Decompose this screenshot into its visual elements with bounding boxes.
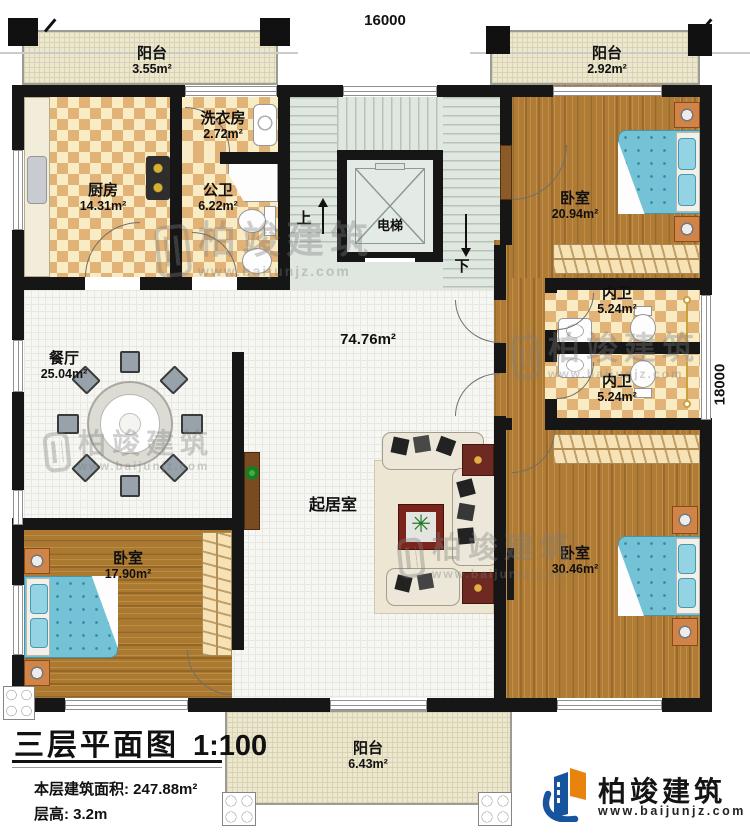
watermark-url: www.baijunjz.com (198, 263, 374, 279)
brand-logo-window (557, 790, 560, 795)
room-area: 3.55m² (112, 62, 192, 76)
column (8, 18, 38, 46)
dining-chair (120, 475, 140, 497)
window (13, 490, 23, 525)
window (13, 150, 23, 230)
bed-sheet (618, 536, 650, 616)
sofa-pillow (413, 435, 431, 453)
room-label-balcony-top-right: 阳台2.92m² (567, 45, 647, 77)
watermark-name: 柏竣建筑 (432, 534, 576, 564)
watermark-logo-icon (510, 333, 542, 380)
wall (12, 518, 244, 530)
watermark-url: www.baijunjz.com (432, 567, 576, 581)
elevator-vent (375, 163, 405, 170)
floor-plan: 电梯 上 下 (0, 0, 750, 836)
wall (437, 85, 553, 97)
wall (494, 343, 506, 373)
wall (427, 698, 557, 712)
wall (12, 525, 24, 585)
window (65, 700, 188, 710)
sofa-pillow (457, 503, 476, 522)
brand-url: www.baijunjz.com (598, 804, 746, 818)
window (343, 86, 437, 96)
wall (12, 277, 85, 290)
room-label-bedroom1: 卧室20.94m² (535, 190, 615, 222)
title-block: 三层平面图1:100 (14, 720, 267, 764)
sliding-door (330, 700, 427, 710)
watermark: 柏竣建筑 www.baijunjz.com (512, 332, 700, 381)
wardrobe (202, 532, 232, 656)
room-area: 17.90m² (88, 567, 168, 581)
room-label-balcony-top-left: 阳台3.55m² (112, 45, 192, 77)
sliding-door (185, 86, 277, 96)
watermark-text-group: 柏竣建筑 www.baijunjz.com (198, 222, 374, 279)
up-arrow-icon (318, 198, 328, 207)
room-area: 25.04m² (24, 367, 104, 381)
floor-area-value: 247.88m² (133, 781, 197, 798)
room-name: 阳台 (567, 45, 647, 62)
pillow (678, 138, 696, 170)
room-label-living: 起居室 (293, 497, 373, 515)
room-label-public-bath: 公卫6.22m² (180, 182, 256, 214)
watermark-text-group: 柏竣建筑 www.baijunjz.com (432, 534, 576, 581)
down-arrow-icon (461, 248, 471, 257)
watermark-text-group: 柏竣建筑 www.baijunjz.com (78, 430, 214, 473)
pillow (30, 618, 48, 648)
cabinet (244, 452, 260, 530)
pillow (30, 584, 48, 614)
wall (277, 85, 343, 97)
watermark-logo-icon (396, 536, 426, 578)
column-footing (478, 792, 512, 826)
dimension-right: 18000 (712, 355, 729, 415)
end-table (462, 444, 494, 476)
nightstand (24, 660, 50, 686)
brand-logo-icon (540, 764, 594, 822)
pillow (678, 174, 696, 206)
pillow (678, 544, 696, 574)
nightstand (672, 618, 698, 646)
sliding-door (553, 86, 662, 96)
nightstand (674, 102, 700, 128)
title-underline (12, 767, 222, 768)
window (13, 585, 23, 655)
wardrobe (553, 434, 700, 464)
watermark-url: www.baijunjz.com (548, 367, 700, 381)
wall (494, 245, 506, 300)
watermark: 柏竣建筑 www.baijunjz.com (44, 430, 214, 473)
room-area: 5.24m² (577, 302, 657, 316)
room-label-balcony-bottom: 阳台6.43m² (328, 740, 408, 772)
floor-area-line: 本层建筑面积: 247.88m² (34, 778, 197, 799)
room-name: 餐厅 (24, 350, 104, 367)
wall (12, 392, 24, 490)
column-footing (3, 686, 35, 720)
floor-area-label: 本层建筑面积: (34, 781, 129, 798)
room-label-hall-area: 74.76m² (328, 331, 408, 348)
wall (232, 352, 244, 530)
wardrobe (553, 244, 700, 274)
room-name: 公卫 (180, 182, 256, 199)
wall (188, 698, 330, 712)
plan-title: 三层平面图 (14, 729, 179, 762)
room-name: 卧室 (88, 550, 168, 567)
brand-logo-tower-orange (570, 768, 586, 800)
watermark: 柏竣建筑 www.baijunjz.com (398, 534, 576, 581)
floor-height-label: 层高: (34, 806, 69, 823)
nightstand (672, 506, 698, 534)
floor-height-line: 层高: 3.2m (34, 803, 107, 824)
bed-sheet (86, 576, 118, 658)
towel-bar-knob (683, 400, 691, 408)
room-name: 阳台 (328, 740, 408, 757)
room-area: 6.22m² (180, 199, 256, 213)
room-label-kitchen: 厨房14.31m² (63, 182, 143, 214)
wall (545, 290, 557, 293)
wall (500, 200, 512, 245)
down-arrow-line (465, 214, 467, 248)
wall (494, 418, 512, 430)
window (557, 700, 662, 710)
wall (553, 418, 712, 430)
wall (12, 85, 24, 150)
column-footing (222, 792, 256, 826)
room-area: 2.92m² (567, 62, 647, 76)
room-label-ensuite1: 内卫5.24m² (577, 285, 657, 317)
watermark-name: 柏竣建筑 (78, 430, 214, 458)
room-name: 卧室 (535, 190, 615, 207)
wall (220, 152, 278, 164)
room-name: 起居室 (293, 497, 373, 515)
door-leaf (500, 145, 512, 200)
brand-logo-window (557, 798, 560, 803)
room-area: 74.76m² (328, 331, 408, 348)
title-underline (12, 760, 222, 763)
bed-sheet (618, 130, 650, 214)
wall (232, 530, 244, 650)
watermark-url: www.baijunjz.com (78, 461, 214, 473)
wall (12, 85, 185, 97)
room-name: 厨房 (63, 182, 143, 199)
towel-bar-knob (683, 296, 691, 304)
column (486, 26, 510, 54)
watermark-name: 柏竣建筑 (548, 332, 700, 364)
column (260, 18, 290, 46)
plan-scale: 1:100 (193, 730, 267, 762)
wall (700, 420, 712, 712)
dining-chair (120, 351, 140, 373)
nightstand (24, 548, 50, 574)
watermark-logo-icon (42, 430, 72, 472)
stair-treads (337, 97, 443, 150)
room-area: 5.24m² (577, 390, 657, 404)
dimension-top: 16000 (330, 12, 440, 29)
room-area: 14.31m² (63, 199, 143, 213)
watermark: 柏竣建筑 www.baijunjz.com (156, 222, 374, 279)
stove-icon (146, 156, 170, 200)
room-area: 6.43m² (328, 757, 408, 771)
room-name: 洗衣房 (183, 110, 263, 127)
room-area: 20.94m² (535, 207, 615, 221)
room-label-dining: 餐厅25.04m² (24, 350, 104, 382)
stairs-down-label: 下 (450, 258, 474, 275)
window (13, 340, 23, 392)
sofa-pillow (391, 437, 410, 456)
wall (700, 85, 712, 295)
wall (500, 85, 512, 145)
watermark-logo-icon (153, 223, 192, 278)
room-area: 2.72m² (183, 127, 263, 141)
brand-logo-tower-blue (554, 772, 568, 818)
watermark-name: 柏竣建筑 (198, 222, 374, 260)
window (701, 295, 711, 420)
watermark-text-group: 柏竣建筑 www.baijunjz.com (548, 332, 700, 381)
nightstand (674, 216, 700, 242)
pillow (678, 578, 696, 608)
room-name: 阳台 (112, 45, 192, 62)
plant-icon (245, 466, 259, 480)
down-text: 下 (450, 258, 474, 275)
kitchen-sink (27, 156, 47, 204)
room-label-bedroom2: 卧室17.90m² (88, 550, 168, 582)
floor-height-value: 3.2m (73, 806, 107, 823)
room-label-laundry: 洗衣房2.72m² (183, 110, 263, 142)
room-name: 内卫 (577, 285, 657, 302)
brand-logo-window (557, 782, 560, 787)
